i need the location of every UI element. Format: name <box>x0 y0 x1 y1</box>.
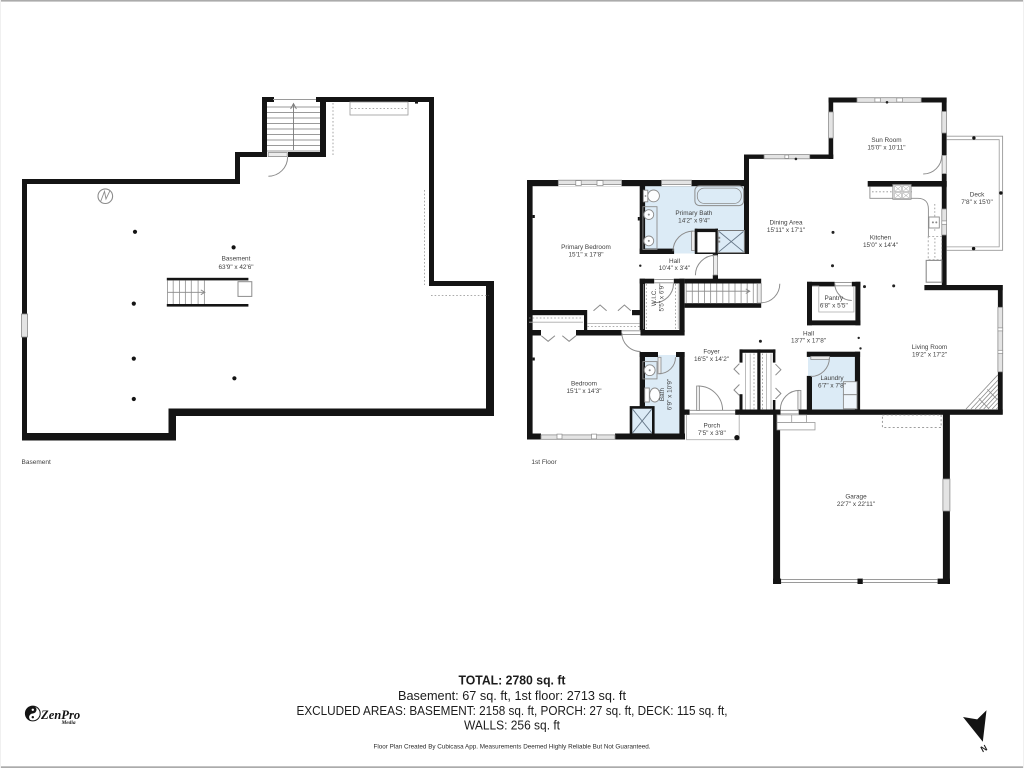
svg-text:19'2" x 17'2": 19'2" x 17'2" <box>912 351 947 358</box>
svg-text:5'5" x 6'9": 5'5" x 6'9" <box>659 284 666 312</box>
svg-text:10'4" x 3'4": 10'4" x 3'4" <box>659 265 691 272</box>
svg-text:Foyer: Foyer <box>703 348 720 355</box>
svg-text:Porch: Porch <box>703 423 720 430</box>
svg-text:Media: Media <box>61 720 76 726</box>
svg-text:Sun Room: Sun Room <box>871 137 901 144</box>
svg-text:7'5" x 3'8": 7'5" x 3'8" <box>698 430 726 437</box>
svg-text:W.I.C.: W.I.C. <box>651 289 658 307</box>
svg-text:15'11" x 17'1": 15'11" x 17'1" <box>767 227 805 234</box>
svg-text:6'9" x 10'9": 6'9" x 10'9" <box>666 379 673 411</box>
svg-text:Deck: Deck <box>970 192 985 199</box>
svg-text:6'7" x 7'8": 6'7" x 7'8" <box>818 382 846 389</box>
svg-text:Dining Area: Dining Area <box>769 219 802 226</box>
svg-text:6'8" x 5'5": 6'8" x 5'5" <box>820 302 848 309</box>
svg-text:14'2" x 9'4": 14'2" x 9'4" <box>678 217 710 224</box>
svg-text:Primary Bath: Primary Bath <box>675 210 712 217</box>
svg-text:22'7" x 22'11": 22'7" x 22'11" <box>837 501 875 508</box>
svg-text:WALLS: 256 sq. ft: WALLS: 256 sq. ft <box>464 718 560 733</box>
svg-text:63'9" x 42'6": 63'9" x 42'6" <box>218 264 253 271</box>
svg-text:7'8" x 15'0": 7'8" x 15'0" <box>961 199 993 206</box>
svg-text:Basement: Basement <box>22 459 51 466</box>
svg-text:TOTAL: 2780 sq. ft: TOTAL: 2780 sq. ft <box>459 673 567 688</box>
svg-text:16'5" x 14'2": 16'5" x 14'2" <box>694 356 729 363</box>
svg-text:Basement: 67 sq. ft, 1st floor: Basement: 67 sq. ft, 1st floor: 2713 sq.… <box>398 688 626 703</box>
svg-text:13'7" x 17'8": 13'7" x 17'8" <box>791 338 826 345</box>
svg-text:Bedroom: Bedroom <box>571 381 597 388</box>
svg-text:Pantry: Pantry <box>825 295 844 302</box>
svg-text:Kitchen: Kitchen <box>870 235 892 242</box>
svg-text:Bath: Bath <box>659 387 666 401</box>
svg-text:15'0" x 10'11": 15'0" x 10'11" <box>867 144 905 151</box>
svg-text:EXCLUDED AREAS: BASEMENT: 2158: EXCLUDED AREAS: BASEMENT: 2158 sq. ft, P… <box>297 703 728 718</box>
svg-text:15'1" x 14'3": 15'1" x 14'3" <box>566 388 601 395</box>
svg-text:15'0" x 14'4": 15'0" x 14'4" <box>863 242 898 249</box>
svg-text:Primary Bedroom: Primary Bedroom <box>561 244 611 251</box>
svg-text:15'1" x 17'8": 15'1" x 17'8" <box>568 251 603 258</box>
svg-text:1st Floor: 1st Floor <box>531 459 557 466</box>
svg-text:Living Room: Living Room <box>912 344 948 351</box>
svg-text:Basement: Basement <box>222 256 251 263</box>
svg-text:Garage: Garage <box>845 494 867 501</box>
svg-text:Laundry: Laundry <box>820 375 844 382</box>
svg-text:Hall: Hall <box>803 330 814 337</box>
svg-text:Floor Plan Created By Cubicasa: Floor Plan Created By Cubicasa App. Meas… <box>374 744 651 751</box>
